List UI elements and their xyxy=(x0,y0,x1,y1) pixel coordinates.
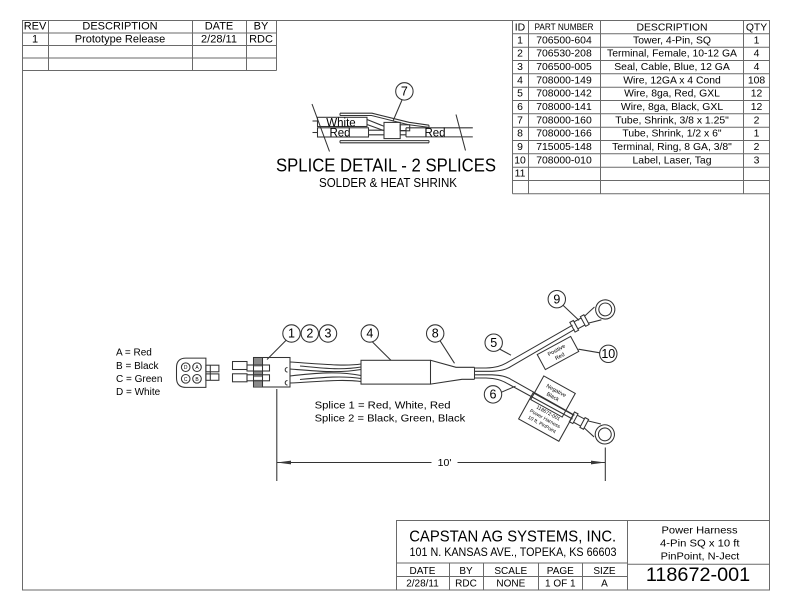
svg-text:6: 6 xyxy=(517,102,523,113)
svg-text:3: 3 xyxy=(517,62,523,73)
svg-text:Red: Red xyxy=(329,127,350,139)
svg-text:4-Pin SQ x 10 ft: 4-Pin SQ x 10 ft xyxy=(660,539,740,550)
svg-text:3: 3 xyxy=(754,155,760,166)
svg-text:RDC: RDC xyxy=(455,579,477,590)
svg-text:SIZE: SIZE xyxy=(593,566,616,577)
svg-text:1: 1 xyxy=(32,34,38,46)
svg-text:CAPSTAN AG SYSTEMS, INC.: CAPSTAN AG SYSTEMS, INC. xyxy=(409,528,616,545)
svg-text:ID: ID xyxy=(515,22,525,33)
svg-text:Wire, 8ga, Black, GXL: Wire, 8ga, Black, GXL xyxy=(621,102,723,113)
svg-text:BY: BY xyxy=(254,21,269,33)
svg-text:715005-148: 715005-148 xyxy=(536,142,592,153)
svg-text:9: 9 xyxy=(553,292,560,306)
svg-text:11: 11 xyxy=(515,169,526,180)
svg-text:6: 6 xyxy=(490,388,497,402)
svg-text:101 N. KANSAS AVE., TOPEKA, KS: 101 N. KANSAS AVE., TOPEKA, KS 66603 xyxy=(410,545,617,559)
svg-text:1: 1 xyxy=(754,129,760,140)
svg-text:Seal, Cable, Blue, 12 GA: Seal, Cable, Blue, 12 GA xyxy=(614,62,730,73)
svg-text:A: A xyxy=(601,579,608,590)
svg-text:1: 1 xyxy=(754,35,760,46)
svg-text:Wire, 12GA x 4 Cond: Wire, 12GA x 4 Cond xyxy=(623,75,721,86)
svg-text:B: B xyxy=(195,377,199,383)
svg-text:4: 4 xyxy=(754,49,760,60)
svg-text:NONE: NONE xyxy=(496,579,525,590)
svg-text:BY: BY xyxy=(459,566,473,577)
svg-text:C: C xyxy=(184,377,188,383)
svg-text:3: 3 xyxy=(325,327,332,341)
svg-text:DESCRIPTION: DESCRIPTION xyxy=(82,21,157,33)
svg-text:PART NUMBER: PART NUMBER xyxy=(535,22,594,33)
svg-text:7: 7 xyxy=(517,115,523,126)
svg-text:706530-208: 706530-208 xyxy=(536,49,592,60)
svg-text:A: A xyxy=(195,365,199,371)
svg-text:8: 8 xyxy=(517,129,523,140)
svg-text:708000-160: 708000-160 xyxy=(536,115,592,126)
svg-text:7: 7 xyxy=(401,85,408,99)
svg-text:RDC: RDC xyxy=(249,34,273,46)
svg-text:1 OF 1: 1 OF 1 xyxy=(545,579,576,590)
svg-text:2/28/11: 2/28/11 xyxy=(201,34,237,46)
svg-text:C = Green: C = Green xyxy=(116,374,162,385)
svg-text:Splice 2 = Black, Green, Black: Splice 2 = Black, Green, Black xyxy=(315,413,466,425)
svg-text:DATE: DATE xyxy=(410,566,436,577)
svg-text:Tube, Shrink, 1/2 x 6": Tube, Shrink, 1/2 x 6" xyxy=(622,129,721,140)
svg-text:708000-166: 708000-166 xyxy=(536,129,592,140)
svg-text:Tube, Shrink, 3/8 x 1.25": Tube, Shrink, 3/8 x 1.25" xyxy=(615,115,729,126)
svg-text:4: 4 xyxy=(366,327,373,341)
svg-text:Prototype Release: Prototype Release xyxy=(75,34,166,46)
svg-text:Label, Laser, Tag: Label, Laser, Tag xyxy=(633,155,712,166)
svg-text:9: 9 xyxy=(517,142,523,153)
svg-text:PinPoint, N-Ject: PinPoint, N-Ject xyxy=(661,552,740,563)
svg-text:B = Black: B = Black xyxy=(116,361,160,372)
svg-text:708000-010: 708000-010 xyxy=(536,155,592,166)
svg-text:Wire, 8ga, Red, GXL: Wire, 8ga, Red, GXL xyxy=(624,89,720,100)
svg-text:12: 12 xyxy=(751,89,763,100)
svg-text:SCALE: SCALE xyxy=(494,566,527,577)
svg-text:118672-001: 118672-001 xyxy=(646,565,750,586)
svg-text:10': 10' xyxy=(438,457,452,469)
svg-text:1: 1 xyxy=(288,327,295,341)
svg-text:706500-005: 706500-005 xyxy=(536,62,592,73)
svg-text:12: 12 xyxy=(751,102,763,113)
svg-text:Power Harness: Power Harness xyxy=(662,526,738,537)
svg-text:4: 4 xyxy=(754,62,760,73)
svg-text:QTY: QTY xyxy=(746,22,767,33)
svg-text:D = White: D = White xyxy=(116,387,161,398)
svg-text:1: 1 xyxy=(517,35,523,46)
svg-text:SOLDER & HEAT SHRINK: SOLDER & HEAT SHRINK xyxy=(319,175,457,190)
svg-text:SPLICE DETAIL - 2 SPLICES: SPLICE DETAIL - 2 SPLICES xyxy=(276,154,496,175)
svg-text:DATE: DATE xyxy=(205,21,234,33)
svg-text:708000-142: 708000-142 xyxy=(536,89,592,100)
svg-text:2: 2 xyxy=(306,327,313,341)
svg-text:706500-604: 706500-604 xyxy=(536,35,592,46)
svg-text:2: 2 xyxy=(754,142,760,153)
svg-text:108: 108 xyxy=(748,75,766,86)
svg-text:D: D xyxy=(184,365,188,371)
svg-text:A = Red: A = Red xyxy=(116,348,152,359)
svg-text:Terminal, Female, 10-12 GA: Terminal, Female, 10-12 GA xyxy=(607,49,737,60)
svg-text:2: 2 xyxy=(517,49,523,60)
svg-text:Red: Red xyxy=(424,127,445,139)
svg-text:2: 2 xyxy=(754,115,760,126)
svg-text:708000-149: 708000-149 xyxy=(536,75,592,86)
svg-text:5: 5 xyxy=(490,336,497,350)
svg-text:10: 10 xyxy=(601,347,615,361)
svg-text:REV: REV xyxy=(24,21,47,33)
svg-text:4: 4 xyxy=(517,75,523,86)
svg-text:708000-141: 708000-141 xyxy=(536,102,592,113)
svg-text:2/28/11: 2/28/11 xyxy=(406,579,439,590)
svg-text:DESCRIPTION: DESCRIPTION xyxy=(636,22,707,33)
svg-text:Tower, 4-Pin, SQ: Tower, 4-Pin, SQ xyxy=(633,35,711,46)
svg-text:Terminal, Ring, 8 GA, 3/8": Terminal, Ring, 8 GA, 3/8" xyxy=(612,142,732,153)
svg-text:PAGE: PAGE xyxy=(547,566,574,577)
svg-text:5: 5 xyxy=(517,89,523,100)
svg-text:8: 8 xyxy=(432,327,439,341)
svg-text:10: 10 xyxy=(514,155,526,166)
svg-text:Splice 1 = Red, White, Red: Splice 1 = Red, White, Red xyxy=(315,400,451,412)
